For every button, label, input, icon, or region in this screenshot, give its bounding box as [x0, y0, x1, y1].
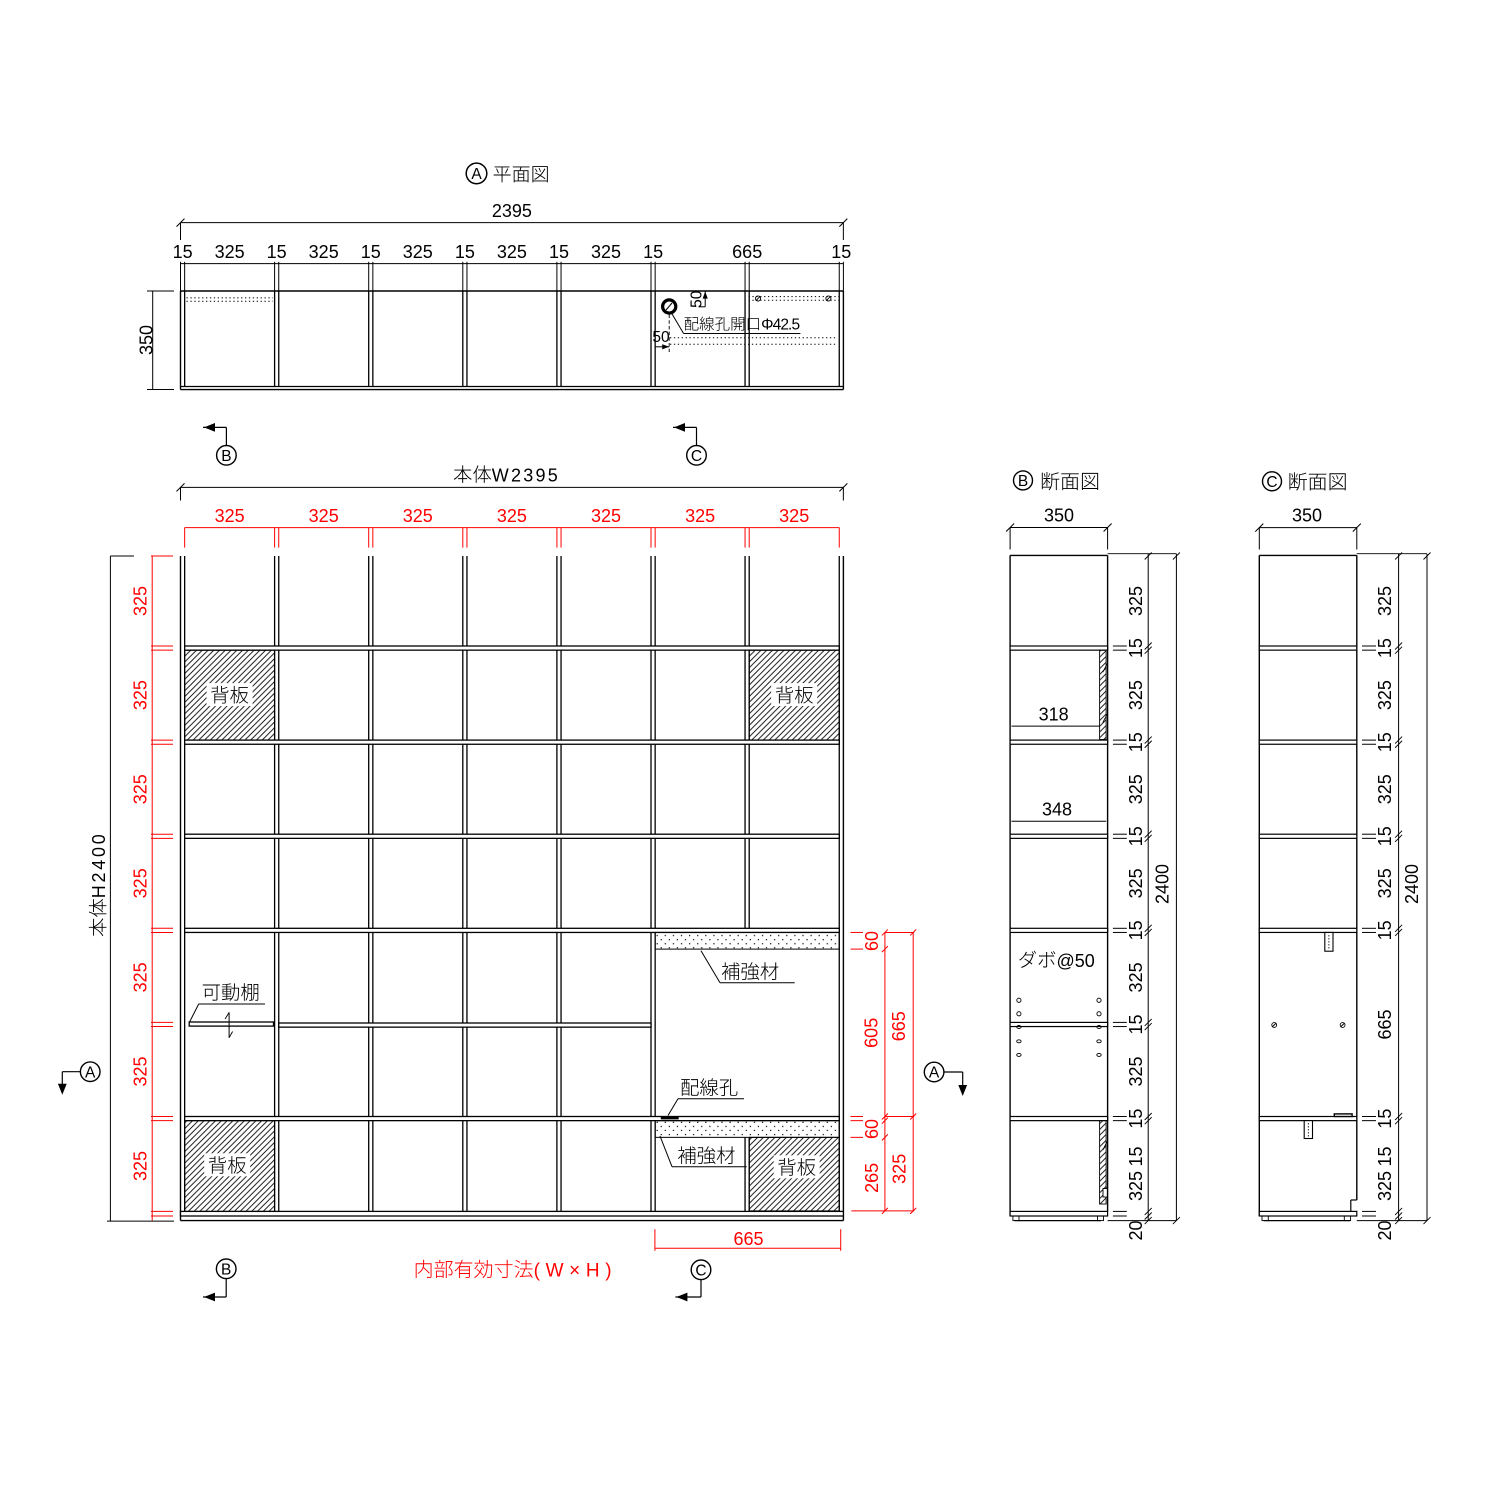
svg-text:15: 15: [1375, 826, 1395, 846]
svg-text:15: 15: [1126, 732, 1146, 752]
svg-text:2395: 2395: [492, 201, 532, 221]
svg-text:325: 325: [131, 868, 151, 898]
svg-text:15: 15: [1126, 1146, 1146, 1166]
svg-text:325: 325: [1126, 962, 1146, 992]
svg-text:265: 265: [862, 1163, 882, 1193]
svg-text:325: 325: [1375, 774, 1395, 804]
svg-text:15: 15: [1375, 920, 1395, 940]
svg-text:325: 325: [403, 242, 433, 262]
svg-text:325: 325: [1126, 868, 1146, 898]
svg-text:325: 325: [131, 774, 151, 804]
svg-text:325: 325: [131, 586, 151, 616]
svg-text:20: 20: [1126, 1220, 1146, 1240]
svg-text:325: 325: [403, 506, 433, 526]
svg-text:A: A: [85, 1064, 96, 1081]
svg-text:B: B: [221, 448, 231, 465]
svg-text:50: 50: [652, 329, 670, 346]
svg-text:15: 15: [455, 242, 475, 262]
svg-text:H2400: H2400: [89, 834, 109, 898]
svg-text:325: 325: [131, 1151, 151, 1181]
svg-text:15: 15: [1126, 638, 1146, 658]
svg-text:325: 325: [1126, 774, 1146, 804]
svg-text:325: 325: [309, 506, 339, 526]
svg-text:325: 325: [1126, 680, 1146, 710]
svg-text:325: 325: [131, 680, 151, 710]
svg-text:665: 665: [889, 1011, 909, 1041]
svg-text:C: C: [695, 1263, 706, 1280]
svg-text:15: 15: [173, 242, 193, 262]
svg-text:15: 15: [1126, 826, 1146, 846]
svg-text:B: B: [1018, 473, 1028, 490]
svg-text:325: 325: [1375, 868, 1395, 898]
svg-text:A: A: [929, 1065, 940, 1082]
svg-text:325: 325: [685, 506, 715, 526]
svg-text:665: 665: [1375, 1009, 1395, 1039]
svg-text:325: 325: [215, 242, 245, 262]
svg-text:15: 15: [831, 242, 851, 262]
svg-text:B: B: [221, 1262, 231, 1279]
svg-text:325: 325: [309, 242, 339, 262]
svg-text:325: 325: [1375, 586, 1395, 616]
svg-text:325: 325: [1126, 586, 1146, 616]
svg-text:15: 15: [1375, 1109, 1395, 1129]
svg-text:15: 15: [1126, 1014, 1146, 1034]
svg-text:325: 325: [1126, 1056, 1146, 1086]
svg-text:325: 325: [1375, 680, 1395, 710]
svg-text:60: 60: [862, 931, 882, 951]
svg-text:C: C: [1266, 474, 1277, 491]
svg-text:325: 325: [497, 242, 527, 262]
svg-text:15: 15: [1375, 732, 1395, 752]
svg-text:350: 350: [137, 325, 157, 355]
svg-text:60: 60: [862, 1119, 882, 1139]
svg-text:325: 325: [890, 1154, 910, 1184]
svg-text:325: 325: [131, 1056, 151, 1086]
svg-text:2400: 2400: [1402, 864, 1422, 904]
svg-text:Φ42.5: Φ42.5: [761, 317, 800, 334]
svg-text:325: 325: [1126, 1171, 1146, 1201]
svg-text:348: 348: [1042, 800, 1072, 820]
svg-text:W2395: W2395: [492, 466, 558, 486]
svg-text:15: 15: [361, 242, 381, 262]
svg-text:15: 15: [267, 242, 287, 262]
svg-text:325: 325: [779, 506, 809, 526]
svg-text:50: 50: [689, 290, 706, 308]
svg-text:15: 15: [1375, 1146, 1395, 1166]
svg-text:A: A: [471, 166, 482, 183]
svg-text:318: 318: [1039, 705, 1069, 725]
svg-text:350: 350: [1292, 506, 1322, 526]
svg-text:15: 15: [1126, 1109, 1146, 1129]
svg-text:605: 605: [862, 1018, 882, 1048]
svg-text:350: 350: [1044, 506, 1074, 526]
svg-text:325: 325: [1375, 1171, 1395, 1201]
svg-text:325: 325: [497, 506, 527, 526]
svg-text:C: C: [691, 448, 702, 465]
svg-text:325: 325: [215, 506, 245, 526]
svg-text:325: 325: [591, 506, 621, 526]
svg-text:15: 15: [1126, 920, 1146, 940]
svg-text:15: 15: [643, 242, 663, 262]
svg-text:325: 325: [591, 242, 621, 262]
svg-text:15: 15: [1375, 638, 1395, 658]
svg-text:@50: @50: [1057, 951, 1095, 971]
svg-text:665: 665: [733, 1229, 763, 1249]
svg-text:20: 20: [1375, 1220, 1395, 1240]
svg-text:15: 15: [549, 242, 569, 262]
svg-text:2400: 2400: [1153, 864, 1173, 904]
svg-text:325: 325: [131, 962, 151, 992]
svg-text:665: 665: [732, 242, 762, 262]
